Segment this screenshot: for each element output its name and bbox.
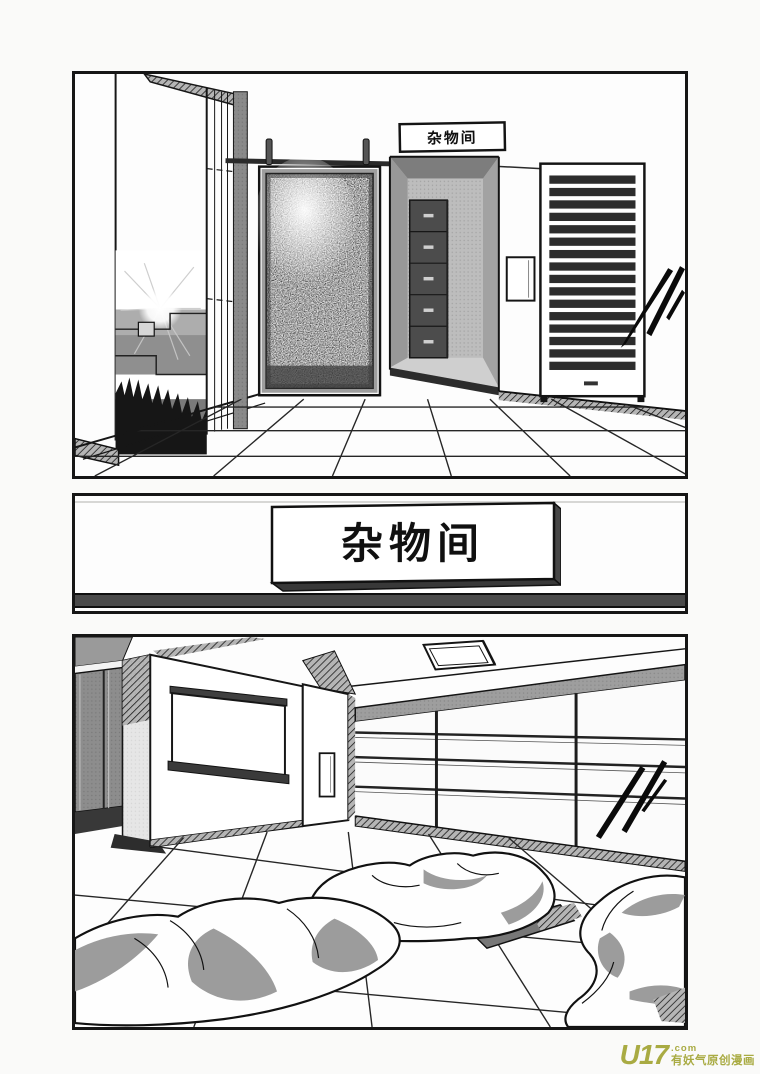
sign-plate: 杂物间 [269,501,561,595]
ceiling-light [424,641,495,670]
door-sign-label: 杂物间 [427,129,478,148]
pillar-panel [320,753,335,796]
alcove [390,157,499,395]
whiteboard [168,686,289,784]
door-hanger [363,139,369,165]
watermark-logo: U17 [620,1041,668,1069]
wall-switch-panel [507,257,535,300]
door-hanger [266,139,272,165]
wall-rail-band [75,593,685,608]
drawer-cabinet [410,200,448,358]
panel-room-scene [72,634,688,1030]
panel-sign-closeup: 杂物间 [72,493,688,614]
manga-page: 杂物间 [0,0,760,1074]
sign-plate-label: 杂物间 [341,520,485,567]
door-sign: 杂物间 [400,122,505,151]
storeroom-drawing [75,637,685,1027]
stippled-sliding-door [253,157,380,395]
watermark-tagline: 有妖气原创漫画 [671,1056,755,1068]
hallway-drawing: 杂物间 [75,74,685,476]
louver-shutter [540,164,644,402]
site-watermark: U17 .com 有妖气原创漫画 [620,1041,755,1069]
watermark-domain-suffix: .com [671,1044,755,1054]
panel-hallway-scene: 杂物间 [72,71,688,479]
